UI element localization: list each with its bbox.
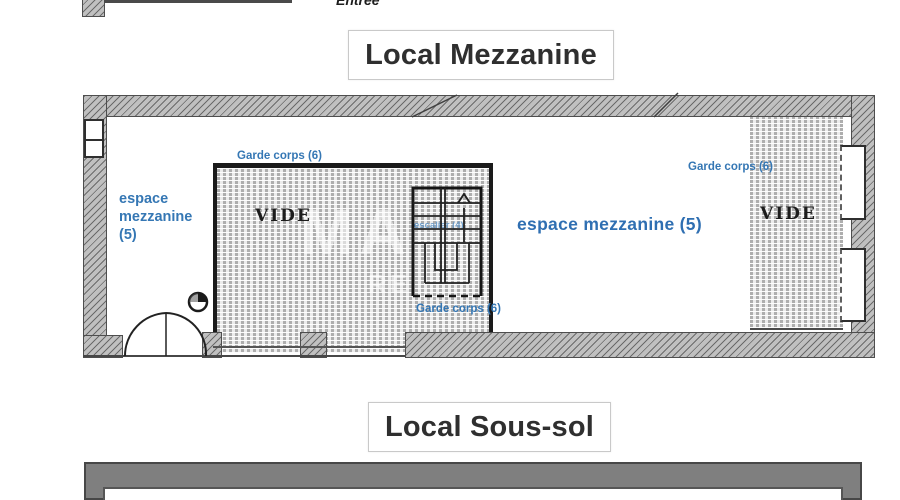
entrance-double-door [122, 306, 208, 358]
sous-sol-inner-room [103, 487, 843, 500]
column-symbol [187, 291, 209, 313]
mezzanine-plan: MA RE Garde corps (6) Garde corps (6) Ga… [83, 95, 875, 358]
title-local-mezzanine-text: Local Mezzanine [365, 39, 597, 72]
espace-mezzanine-center-label: espace mezzanine (5) [517, 214, 702, 235]
title-local-sous-sol-text: Local Sous-sol [385, 411, 594, 444]
window-right-lower [840, 248, 866, 322]
vide-left-label: VIDE [255, 206, 312, 226]
vide-right-label: VIDE [760, 204, 817, 224]
upper-plan-edge-line [104, 0, 292, 3]
window-right-upper [840, 145, 866, 220]
title-local-mezzanine: Local Mezzanine [348, 30, 614, 80]
espace-mezzanine-left-line3: (5) [119, 226, 192, 244]
espace-mezzanine-left-line1: espace [119, 190, 192, 208]
guardrail-label-stair-bottom: Garde corps (6) [416, 303, 501, 315]
window-left-wall [84, 119, 104, 158]
espace-mezzanine-left-label: espace mezzanine (5) [119, 190, 192, 244]
window-left-mullion [86, 139, 102, 141]
staircase [411, 186, 483, 298]
wall-bottom-long [405, 332, 875, 358]
sous-sol-plan-fragment [84, 462, 862, 500]
espace-mezzanine-left-line2: mezzanine [119, 208, 192, 226]
stair-up-arrow-icon [458, 194, 470, 203]
floor-plan-document: Entrée Local Mezzanine MA RE [0, 0, 900, 500]
storefront-glazing-line [213, 346, 405, 348]
guardrail-label-right: Garde corps (6) [688, 161, 773, 173]
wall-top [83, 95, 875, 117]
title-local-sous-sol: Local Sous-sol [368, 402, 611, 452]
upper-plan-wall-fragment [82, 0, 105, 17]
entree-label: Entrée [336, 0, 380, 8]
guardrail-label-left-top: Garde corps (6) [237, 150, 322, 162]
